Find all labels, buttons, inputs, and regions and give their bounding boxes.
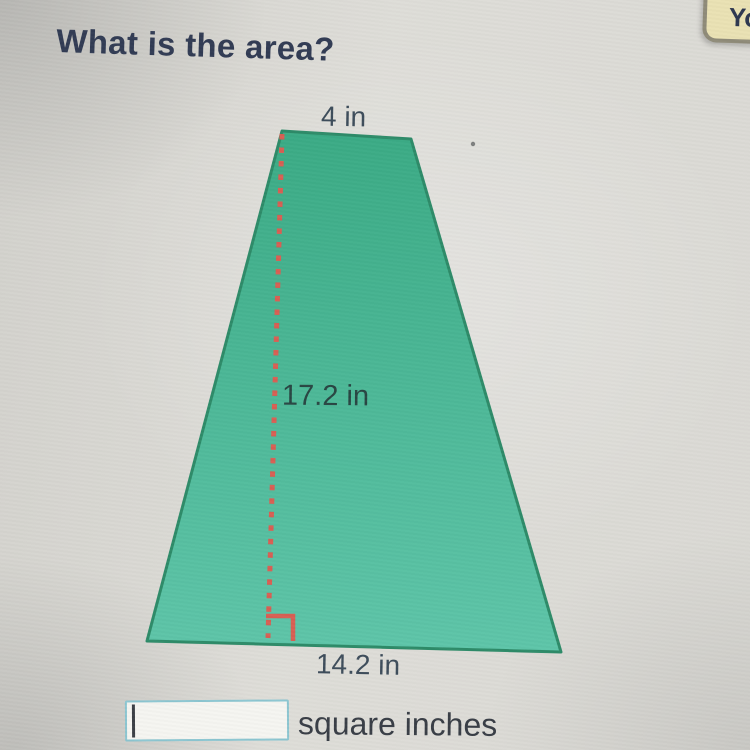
- unit-label: square inches: [298, 705, 498, 744]
- quiz-screen: What is the area? Yo 4 in 17.2 in 14.2 i…: [0, 0, 750, 750]
- corner-tab[interactable]: Yo: [702, 0, 750, 47]
- figure-canvas: [0, 0, 750, 750]
- answer-input[interactable]: [127, 701, 287, 739]
- height-label: 17.2 in: [282, 380, 369, 414]
- top-side-label: 4 in: [321, 101, 367, 134]
- corner-tab-label: Yo: [728, 2, 750, 34]
- speck-dot: [471, 142, 475, 146]
- text-caret-icon: [132, 705, 135, 738]
- answer-input-wrapper: [125, 699, 289, 741]
- base-label: 14.2 in: [316, 648, 401, 681]
